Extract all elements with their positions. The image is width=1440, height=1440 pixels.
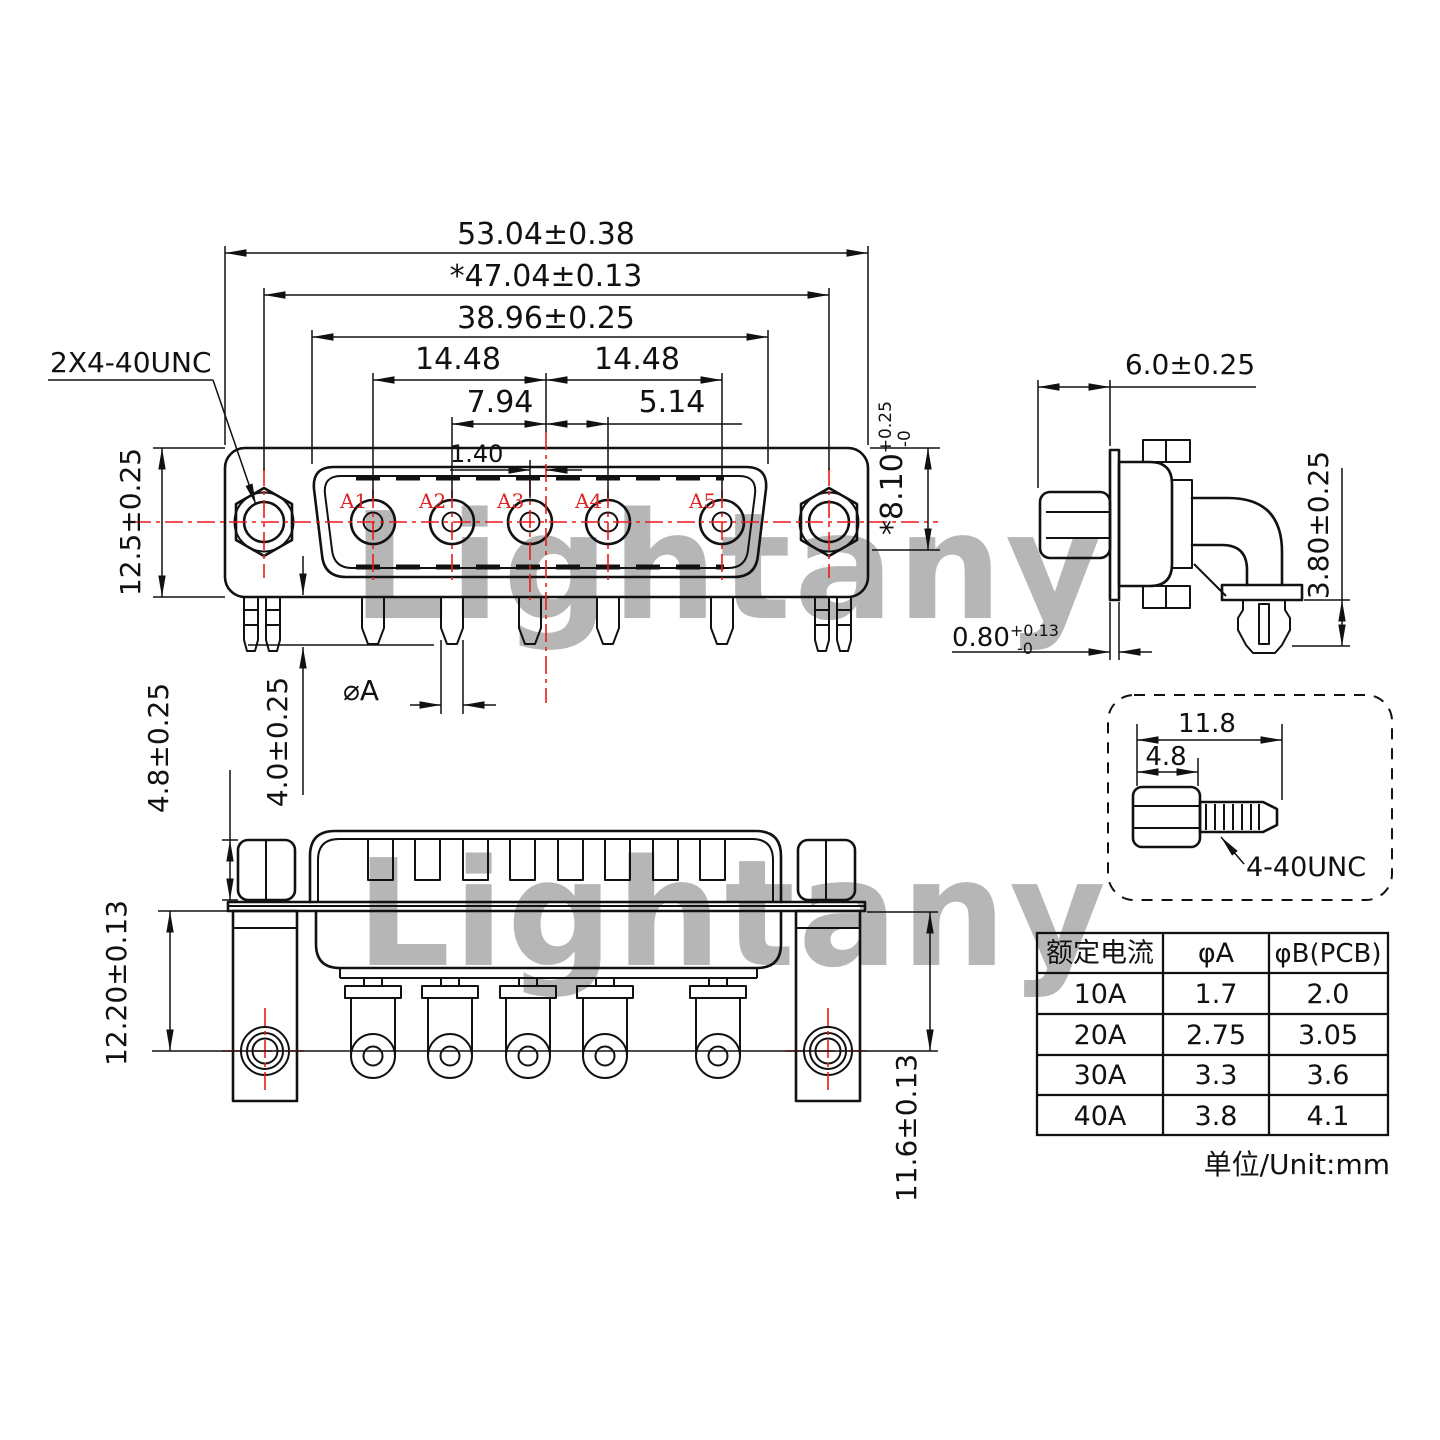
dim-pitch-right: 14.48 (594, 342, 680, 377)
table-header-phiB: φB(PCB) (1275, 939, 1382, 969)
housing-profile (1119, 462, 1172, 586)
dim-standoff-height: 4.8±0.25 (142, 683, 175, 813)
screw-head (1133, 787, 1200, 847)
dim-pitch-a4: 5.14 (639, 385, 706, 420)
pin-label-a2: A2 (418, 489, 446, 513)
screw-detail: 11.8 4.8 4-40UNC (1108, 695, 1392, 900)
dim-overall-width: 53.04±0.38 (457, 217, 635, 252)
dim-mounting-span: *47.04±0.13 (450, 259, 643, 294)
table-cell: 3.6 (1307, 1060, 1350, 1091)
pin-label-a4: A4 (574, 489, 602, 513)
dim-screw-total-length: 11.8 (1178, 709, 1236, 739)
table-header-current: 额定电流 (1046, 938, 1154, 969)
pin-label-a3: A3 (496, 489, 524, 513)
dim-front-depth: 6.0±0.25 (1125, 348, 1255, 381)
pcb-bracket (1222, 585, 1302, 600)
screw-shaft (1200, 802, 1277, 832)
table-cell: 2.0 (1307, 979, 1350, 1010)
table-cell: 30A (1074, 1060, 1127, 1091)
table-cell: 4.1 (1307, 1101, 1350, 1132)
pin-label-a1: A1 (339, 489, 367, 513)
table-cell: 2.75 (1186, 1020, 1246, 1051)
dim-shell-depth: *8.10+0.25-0 (875, 401, 915, 535)
table-cell: 10A (1074, 979, 1127, 1010)
bent-pin-inner (1192, 545, 1247, 585)
thread-callout-front: 2X4-40UNC (50, 346, 212, 379)
dim-shell-width: 38.96±0.25 (457, 301, 635, 336)
unit-note: 单位/Unit:mm (1204, 1148, 1390, 1181)
dim-hole-to-plate-right: 11.6±0.13 (890, 1054, 923, 1202)
dim-pin-diameter: ⌀A (343, 674, 379, 707)
pin-label-a5: A5 (688, 489, 716, 513)
table-cell: 3.05 (1298, 1020, 1358, 1051)
dim-pitch-a2: 7.94 (467, 385, 534, 420)
dim-body-height: 12.5±0.25 (114, 448, 147, 596)
thread-callout-screw: 4-40UNC (1246, 852, 1366, 883)
table-cell: 3.3 (1195, 1060, 1238, 1091)
table-cell: 20A (1074, 1020, 1127, 1051)
dim-pin-below-bracket: 3.80±0.25 (1302, 451, 1335, 599)
table-header-phiA: φA (1198, 938, 1235, 969)
dim-pitch-left: 14.48 (415, 342, 501, 377)
flange-plate (1110, 450, 1119, 600)
clinch-pin (1238, 600, 1290, 653)
dim-hole-to-plate-left: 12.20±0.13 (100, 900, 133, 1066)
table-cell: 3.8 (1195, 1101, 1238, 1132)
watermark-bottom: Lightany (356, 828, 1109, 1000)
dim-pin-length: 4.0±0.25 (261, 677, 294, 807)
bent-pin-outer (1192, 498, 1282, 585)
dim-screw-head-length: 4.8 (1145, 742, 1186, 772)
table-cell: 40A (1074, 1101, 1127, 1132)
table-cell: 1.7 (1195, 979, 1238, 1010)
dim-pitch-a3-offset: 1.40 (450, 440, 503, 468)
engineering-drawing: Lightany Lightany (0, 0, 1440, 1440)
